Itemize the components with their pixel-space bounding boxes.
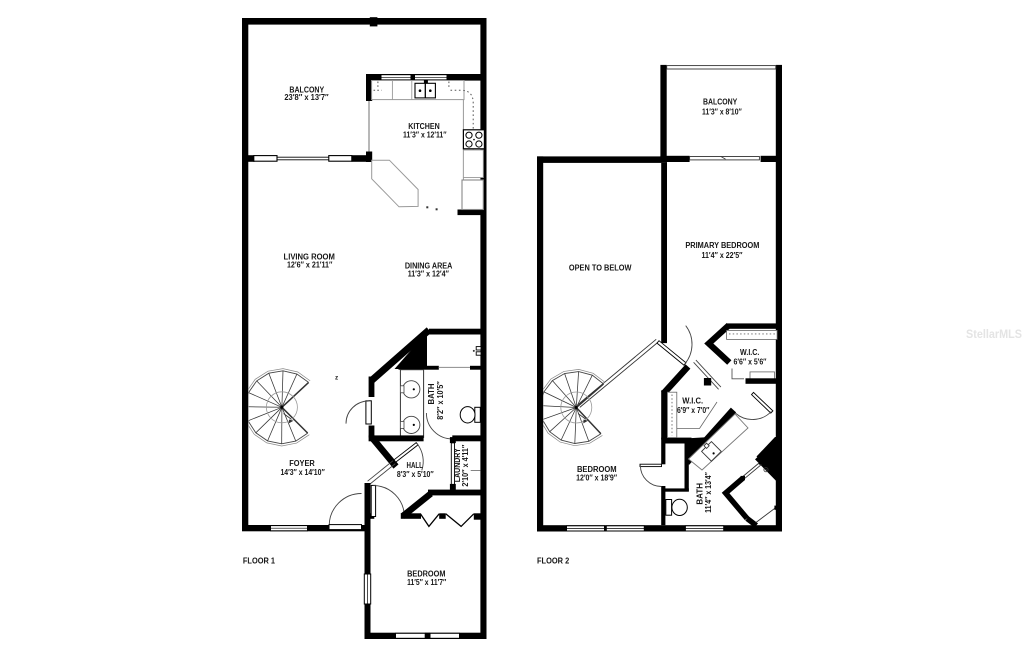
svg-text:6′6″ x 5′6″: 6′6″ x 5′6″ [734, 357, 767, 366]
svg-text:HALL: HALL [407, 461, 424, 470]
svg-text:2′10″ x 4′11″: 2′10″ x 4′11″ [461, 444, 470, 486]
svg-text:12′0″ x 18′9″: 12′0″ x 18′9″ [576, 473, 617, 482]
svg-text:11′3″ x 12′11″: 11′3″ x 12′11″ [403, 131, 447, 140]
svg-text:StellarMLS: StellarMLS [966, 327, 1022, 341]
svg-text:23′8″ x 13′7″: 23′8″ x 13′7″ [284, 93, 329, 102]
svg-text:6′9″ x 7′0″: 6′9″ x 7′0″ [677, 406, 710, 415]
svg-text:11′4″ x 22′5″: 11′4″ x 22′5″ [702, 251, 743, 260]
svg-text:BATH: BATH [427, 383, 436, 404]
svg-text:11′3″ x 12′4″: 11′3″ x 12′4″ [408, 270, 449, 279]
svg-text:OPEN TO BELOW: OPEN TO BELOW [569, 263, 632, 272]
svg-text:11′5″ x 11′7″: 11′5″ x 11′7″ [407, 578, 446, 587]
svg-text:FLOOR 2: FLOOR 2 [537, 557, 570, 566]
svg-text:11′3″ x 8′10″: 11′3″ x 8′10″ [702, 108, 742, 117]
svg-text:FOYER: FOYER [289, 459, 315, 468]
svg-text:PRIMARY BEDROOM: PRIMARY BEDROOM [685, 241, 759, 250]
svg-text:W.I.C.: W.I.C. [740, 348, 759, 357]
svg-text:12′6″ x 21′11″: 12′6″ x 21′11″ [287, 261, 333, 270]
svg-text:KITCHEN: KITCHEN [408, 122, 440, 131]
svg-text:14′3″ x 14′10″: 14′3″ x 14′10″ [280, 468, 324, 477]
svg-text:8′3″ x 5′10″: 8′3″ x 5′10″ [397, 470, 434, 479]
svg-text:FLOOR 1: FLOOR 1 [243, 557, 276, 566]
svg-text:W.I.C.: W.I.C. [682, 396, 703, 405]
svg-text:8′2″ x 10′5″: 8′2″ x 10′5″ [436, 381, 445, 420]
svg-text:BALCONY: BALCONY [703, 97, 738, 106]
svg-text:11′4″ x 13′4″: 11′4″ x 13′4″ [704, 472, 713, 513]
